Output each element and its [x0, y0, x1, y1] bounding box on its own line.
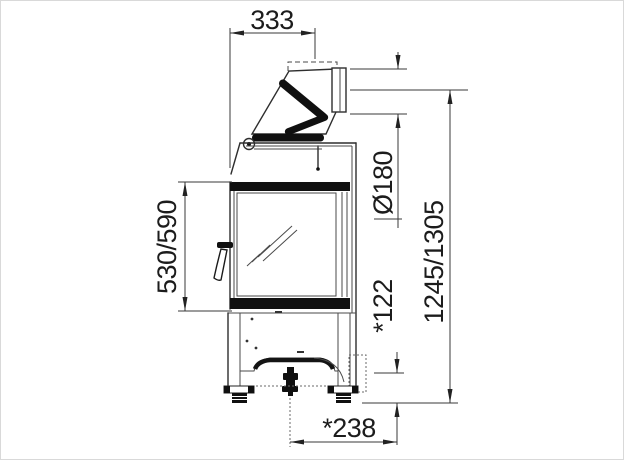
stove-body	[231, 143, 356, 390]
dim-label-front-to-flue: 333	[250, 5, 294, 35]
arrowhead	[448, 389, 453, 403]
arrowhead	[183, 297, 188, 311]
front-foot	[224, 386, 254, 403]
glass-hatch-lines	[247, 226, 297, 266]
connection-valve	[282, 367, 298, 396]
base-assembly	[224, 311, 366, 403]
rear-foot	[328, 386, 358, 403]
door-top-frame	[230, 182, 350, 191]
flue-assembly	[244, 62, 347, 171]
arrowhead	[383, 440, 397, 445]
dim-label-flue-diameter: Ø180	[368, 151, 398, 215]
door-bottom-frame	[230, 298, 350, 309]
dim-air-inlet-depth: *238	[290, 398, 397, 447]
damper-rod-knob	[316, 167, 320, 171]
rear-outlet-stub	[332, 68, 346, 112]
dim-label-total-height: 1245/1305	[419, 200, 449, 323]
arrowhead	[396, 114, 401, 128]
arrowhead	[301, 31, 315, 36]
flue-collar	[252, 134, 324, 142]
door-assembly	[214, 182, 350, 309]
front-slant-line	[231, 143, 240, 174]
dim-total-height: 1245/1305	[362, 90, 458, 403]
technical-drawing: 333 Ø180 1245/1305	[0, 0, 624, 460]
dim-label-air-inlet-height: *122	[368, 279, 398, 333]
dim-label-air-inlet-depth: *238	[322, 413, 376, 443]
door-glass	[237, 193, 336, 296]
arrowhead	[230, 31, 244, 36]
arrowhead	[290, 440, 304, 445]
dim-label-door-height: 530/590	[152, 200, 182, 294]
arrowhead	[183, 182, 188, 196]
arrowhead	[395, 359, 400, 373]
flue-elbow-body	[252, 69, 336, 134]
screw-dots	[246, 311, 304, 353]
arrowhead	[396, 55, 401, 69]
drawing-canvas: 333 Ø180 1245/1305	[0, 0, 624, 460]
arrowhead	[395, 403, 400, 417]
arrowhead	[448, 90, 453, 104]
